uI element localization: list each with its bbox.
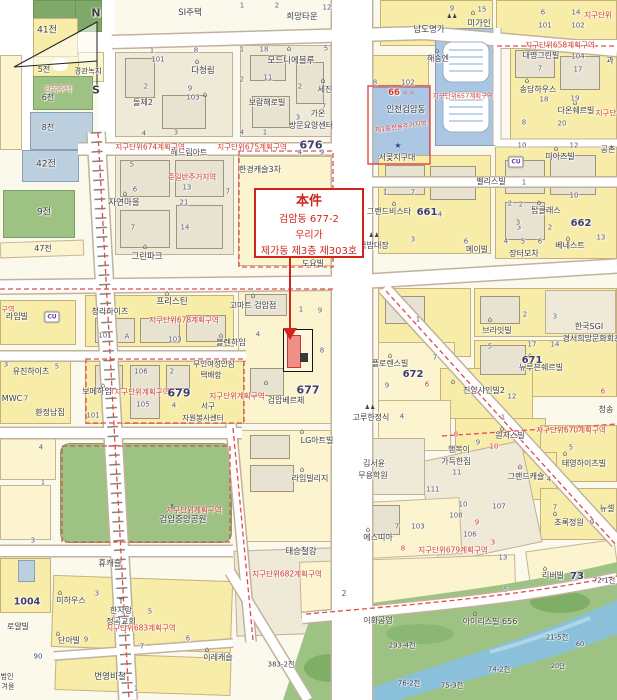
map-label: 검암베르체 — [268, 397, 305, 405]
map-label: 메이빌 — [466, 246, 488, 254]
map-label: 4 — [240, 130, 244, 137]
map-label: 9 — [385, 383, 389, 390]
map-label: 라임빌 — [6, 313, 28, 321]
map-label: 102 — [401, 80, 414, 87]
map-label: 5 — [148, 609, 152, 616]
map-label: 단아빌 — [58, 637, 80, 645]
map-label: 6 — [538, 239, 542, 246]
map-label: 101 — [151, 57, 164, 64]
map-label: 청라하이츠 — [92, 308, 129, 316]
map-label: 지구단위658계획구역 — [525, 41, 595, 49]
map-label: 9전 — [37, 209, 51, 218]
map-label: 2 — [170, 369, 174, 376]
map-label: 2 — [298, 84, 302, 91]
map-label: 9 — [188, 86, 192, 93]
map-label: 지구단위670계획구역 — [536, 426, 606, 434]
map-label: 법인 — [1, 674, 14, 681]
map-label: 1 — [41, 480, 45, 487]
map-label: 6천 — [42, 94, 54, 102]
map-label: 5 — [130, 162, 134, 169]
map-label: 6 — [133, 187, 137, 194]
map-label: 15 — [478, 7, 487, 14]
map-label: 103 — [411, 524, 424, 531]
map-label: 지구단위679계획구역 — [418, 546, 488, 554]
map-label: 4 — [400, 414, 404, 421]
map-label: 7 — [553, 505, 557, 512]
map-label: 10 — [459, 502, 468, 509]
map-label: 택배함 — [201, 371, 222, 379]
map-label: 그랜드캐슬 — [508, 473, 545, 481]
map-label: 가온 — [311, 110, 326, 118]
map-label: 지구단위678계획구역 — [149, 316, 219, 324]
map-label: 18 — [540, 97, 549, 104]
map-label: 보메하임 — [82, 388, 111, 396]
map-label: LG아트빌 — [301, 437, 334, 445]
map-label: A — [125, 334, 130, 341]
map-label: 5 — [569, 445, 573, 452]
map-label: 10 — [490, 444, 499, 451]
callout-arrow-line — [289, 256, 291, 330]
map-label: 해송엔 — [427, 55, 449, 63]
map-label: 73 — [570, 572, 584, 582]
map-label: 6 — [464, 239, 468, 246]
map-label: 293-4천 — [389, 643, 416, 650]
map-label: 한사랑 — [110, 607, 132, 615]
map-label: 3 — [174, 130, 178, 137]
map-label: 정곡교회 — [106, 618, 135, 626]
map-label: 브라잇빌 — [482, 327, 511, 335]
map-label: 8 — [522, 120, 526, 127]
callout-case-label: 本件 — [296, 190, 322, 209]
building-icon: ⌂ — [143, 244, 147, 251]
building-icon: ⌂ — [123, 191, 127, 198]
map-label: 무인여성안심 — [193, 360, 234, 368]
map-label: 뉴셀 — [600, 505, 615, 513]
map-label: 5전 — [38, 66, 50, 74]
map-label: 14 — [181, 225, 190, 232]
map-label: 태승철강 — [285, 548, 316, 557]
map-label: 90 — [34, 654, 43, 661]
map-label: 라임빌리지 — [292, 475, 329, 483]
callout-unit: 제가동 제3층 제303호 — [261, 242, 357, 257]
map-label: 662 — [571, 219, 592, 229]
map-label: 3 — [516, 220, 520, 227]
map-label: 단독주택 — [44, 85, 72, 93]
map-label: 다청림 — [191, 67, 214, 76]
map-label: 남도명가 — [413, 26, 444, 35]
map-label: 41전 — [37, 27, 57, 36]
map-label: 2 — [508, 201, 512, 208]
map-label: 21-5천 — [546, 635, 568, 642]
map-label: 리버빌 — [542, 572, 564, 580]
map-label: 8 — [373, 80, 377, 87]
map-label: 서곶지구대 — [379, 154, 416, 162]
map-label: 103 — [168, 337, 181, 344]
map-label: 3 — [31, 538, 35, 545]
map-label: 104 — [571, 54, 584, 61]
map-label: 6 — [541, 10, 545, 17]
map-label: 제1종전용주거지역 — [375, 120, 427, 134]
map-label: 72-1천 — [593, 578, 615, 585]
map-label: 2 — [275, 3, 279, 10]
map-label: 미아즈빌 — [545, 153, 574, 161]
map-label: 10 — [570, 193, 579, 200]
map-label: 6 — [601, 389, 605, 396]
map-label: 5 — [521, 239, 525, 246]
map-label: 13 — [499, 555, 508, 562]
map-label: 4 — [39, 445, 43, 452]
map-label: 6 — [425, 382, 429, 389]
building-icon: ⌂ — [488, 317, 492, 324]
map-label: 송담하우스 — [520, 86, 557, 94]
map-label: 2 — [341, 590, 346, 598]
map-label: 383-2천 — [268, 662, 295, 669]
map-label: 1 — [522, 180, 526, 187]
map-label: 12 — [323, 5, 332, 12]
map-label: 4 — [256, 332, 260, 339]
map-label: 검암중앙공원 — [160, 516, 207, 525]
map-label: 101 — [98, 333, 111, 340]
map-label: 8 — [454, 432, 458, 439]
map-label: 7 — [226, 189, 230, 196]
map-label: 고마트 검암점 — [230, 302, 277, 310]
map-label: 준일반주거지역 — [168, 173, 216, 181]
map-label: 1004 — [14, 597, 40, 607]
map-label: 12 — [508, 394, 517, 401]
map-label: 677 — [297, 385, 320, 396]
map-label: 74-2천 — [488, 667, 510, 674]
map-label: 이화공영 — [363, 617, 392, 625]
map-label: 106 — [134, 369, 147, 376]
map-label: 로얄빌 — [7, 623, 29, 631]
map-label: 3 — [95, 591, 99, 598]
map-label: 17 — [574, 67, 583, 74]
map-label: 인천검암동 — [386, 106, 425, 115]
map-label: 번영비철 — [94, 673, 125, 682]
map-label: SI주택 — [178, 9, 202, 18]
map-label: 101 — [538, 23, 551, 30]
police-badge-icon: ★ — [394, 142, 401, 150]
map-label: 9 — [590, 520, 594, 527]
map-label: 초록정원 — [554, 519, 583, 527]
map-label: 21 — [180, 200, 189, 207]
map-label: 12 — [570, 143, 579, 150]
map-label: 지구단위 — [584, 11, 612, 19]
map-label: 자연마을 — [108, 199, 139, 208]
building-icon: ⌂ — [403, 90, 407, 96]
map-label: 서구 — [201, 402, 215, 410]
map-label: 7 — [395, 524, 399, 531]
map-label: 60 — [576, 641, 584, 648]
map-label: 지구단위674계획구역 — [115, 143, 185, 151]
map-label: 가득한집 — [441, 458, 470, 466]
map-label: 에스띠아 — [363, 534, 392, 542]
map-label: 블렌하임 — [216, 339, 245, 347]
map-label: 11 — [453, 470, 462, 477]
map-label: 105 — [136, 402, 149, 409]
map-label: 한국SGI — [575, 323, 603, 331]
map-label: 107 — [492, 504, 505, 511]
map-label: 14 — [572, 10, 581, 17]
map-label: 102 — [571, 23, 584, 30]
map-label: 13 — [183, 185, 192, 192]
map-label: 679 — [168, 388, 191, 399]
map-label: 그랜드비스타 — [367, 208, 411, 216]
map-label: 672 — [403, 370, 424, 380]
building-icon: ⌂ — [251, 293, 255, 300]
map-label: 8천 — [42, 124, 54, 132]
map-label: 1 — [416, 317, 420, 324]
map-label: 청송 — [599, 406, 614, 414]
map-label: S — [92, 85, 100, 96]
map-label: 아이리스빌 656 — [463, 618, 518, 626]
map-label: 프리스틴 — [156, 298, 187, 307]
map-label: 1 — [240, 47, 244, 54]
map-label: 3 — [491, 540, 495, 547]
building-icon: ⌂ — [321, 78, 325, 85]
map-label: 3 — [411, 237, 415, 244]
map-label: 18 — [260, 47, 269, 54]
map-label: 지구단위계획구역 — [209, 392, 264, 400]
map-label: 한경캐슬3차 — [239, 166, 281, 174]
map-label: 20단 — [551, 663, 565, 670]
map-label: 1 — [150, 48, 154, 55]
map-label: 미하우스 — [56, 597, 85, 605]
map-label: 6 — [186, 636, 190, 643]
map-label: 4 — [438, 212, 442, 219]
building-icon: ⌂ — [287, 46, 291, 53]
map-label: 2 — [519, 202, 523, 209]
map-label: 베네스트 — [555, 242, 584, 250]
persons-icon: ♟♟ — [447, 14, 458, 20]
persons-icon: ♟♟ — [369, 233, 380, 239]
map-label: 지구단위계획구역 — [114, 388, 169, 396]
callout-building: 우리가 — [295, 226, 323, 241]
map-label: 장터모차 — [509, 250, 538, 258]
map-label: 10 — [518, 143, 527, 150]
map-label: 자원봉사센터 — [182, 414, 223, 422]
map-label: 7 — [411, 190, 415, 197]
map-label: 75-3천 — [441, 683, 463, 690]
map-label: 1 — [240, 3, 244, 10]
map-label: 모드니에블루 — [268, 57, 315, 66]
map-label: 9 — [475, 520, 479, 527]
map-label: 행복이 — [448, 446, 470, 454]
map-label: 2 — [523, 312, 527, 319]
building-icon: ⌂ — [264, 380, 268, 387]
callout-arrow-head — [283, 328, 297, 340]
map-label: 그린파크 — [131, 253, 162, 262]
map-label: 대명그린빌 — [523, 52, 560, 60]
map-label: 101 — [86, 413, 99, 420]
map-label: 11 — [264, 75, 273, 82]
building-icon: ⌂ — [203, 92, 207, 99]
building-icon: ⌂ — [410, 90, 414, 96]
map-label: 5 — [55, 364, 59, 371]
map-label: 1 — [263, 130, 267, 137]
map-label: 3 — [296, 115, 300, 122]
building-icon: ⌂ — [195, 59, 199, 66]
map-label: 47전 — [34, 245, 52, 253]
map-label: 벨리스빌 — [476, 178, 505, 186]
map-label: 2 — [548, 225, 552, 232]
map-label: 보람해로빌 — [249, 99, 286, 107]
building-icon — [300, 353, 308, 362]
map-label: 4 — [547, 477, 551, 484]
map-label: 탑클래스 — [531, 207, 560, 215]
map-label: 이레캐슬 — [203, 654, 232, 662]
map-canvas: NS41전5전경관녹지단독주택6천8천42전9전47전SI주택희망타운1212다… — [0, 0, 617, 700]
map-label: 9 — [476, 440, 480, 447]
map-label: 1 — [383, 190, 387, 197]
map-label: 108 — [449, 513, 462, 520]
map-label: 유진하이츠 — [13, 368, 50, 376]
map-label: 8 — [401, 546, 405, 553]
map-label: 9 — [450, 6, 454, 13]
map-label: N — [91, 8, 100, 19]
map-label: 2 — [144, 84, 148, 91]
map-label: 1 — [299, 307, 303, 314]
map-label: 76-2천 — [398, 681, 420, 688]
cu-store-badge: CU — [44, 312, 59, 323]
map-label: 돌체2 — [133, 99, 153, 107]
map-label: 경관녹지 — [74, 67, 102, 75]
map-label: 지구단 — [596, 109, 617, 117]
map-label: 111 — [426, 487, 439, 494]
map-label: 9 — [320, 150, 324, 157]
map-label: 휴캐슬 — [98, 560, 121, 569]
map-label: 7 — [140, 644, 144, 651]
map-label: 경서희망문화회관 — [563, 335, 617, 343]
map-label: 13 — [597, 235, 606, 242]
map-label: 환정남집 — [35, 409, 64, 417]
map-label: 19 — [571, 96, 580, 103]
map-label: 과 — [606, 57, 613, 65]
map-label: 4 — [142, 131, 146, 138]
map-label: 66 — [388, 89, 400, 98]
map-label: 14 — [551, 342, 560, 349]
map-label: 무용학원 — [358, 472, 387, 480]
map-label: 4 — [172, 403, 176, 410]
map-label: 고루한정식 — [353, 414, 390, 422]
map-label: 5 — [504, 587, 508, 594]
map-label: 661 — [417, 208, 438, 218]
map-label: 겨울 — [2, 684, 15, 691]
map-label: 지구단위675계획구역 — [217, 143, 287, 151]
map-label: 4 — [298, 150, 302, 157]
map-label: MWC — [2, 395, 22, 403]
map-label: 도요빌 — [302, 260, 324, 268]
map-label: 9 — [318, 308, 322, 315]
map-label: 4 — [504, 239, 508, 246]
map-label: 2 — [240, 77, 244, 84]
map-label: 7 — [433, 355, 437, 362]
callout-address: 검암동 677-2 — [279, 210, 339, 225]
map-label: 김서윤 — [363, 460, 385, 468]
map-label: 지구단위682계획구역 — [252, 570, 322, 578]
map-label: 20 — [558, 121, 567, 128]
map-label: 103 — [186, 95, 199, 102]
map-label: 방문요양센터 — [289, 122, 333, 130]
map-label: 106 — [463, 532, 476, 539]
building-icon: ⌂ — [518, 464, 522, 471]
building-icon: ⌂ — [300, 429, 304, 436]
map-label: 17 — [528, 342, 537, 349]
map-label: 지구단위657계획구역 — [433, 93, 493, 100]
building-icon: ⌂ — [300, 467, 304, 474]
map-label: 5 — [488, 344, 492, 351]
subject-callout[interactable]: 本件 검암동 677-2 우리가 제가동 제3층 제303호 — [254, 188, 364, 258]
map-label: 원저스빌 — [495, 432, 524, 440]
cu-store-badge: CU — [508, 157, 523, 168]
map-label: 7 — [322, 104, 326, 111]
map-label: 9 — [84, 637, 88, 644]
building-icon: ⌂ — [525, 78, 529, 85]
map-label: 8 — [320, 348, 324, 355]
map-label: 42전 — [36, 161, 56, 170]
building-icon: ⌂ — [471, 10, 475, 17]
map-label: 세진 — [318, 86, 333, 94]
building-icon: ⌂ — [563, 451, 567, 458]
building-icon: ⌂ — [553, 511, 557, 518]
map-label: 미가인 — [467, 20, 490, 29]
map-label: 5 — [324, 46, 328, 53]
map-label: 7 — [24, 396, 28, 403]
map-label: 1 — [134, 686, 138, 693]
map-label: 희망타운 — [286, 13, 317, 22]
map-label: 3 — [553, 314, 557, 321]
persons-icon: ♟♟ — [365, 405, 376, 411]
map-label: 태영하이츠빌 — [562, 460, 606, 468]
map-label: 7 — [131, 225, 135, 232]
map-label: 진양샤인빌2 — [463, 387, 505, 395]
map-label: 뉴루븐쉐르빌 — [519, 364, 563, 372]
map-label: 플로렌스빌 — [372, 360, 409, 368]
map-label: 다온쉐르빌 — [558, 107, 595, 115]
map-label: 1 — [501, 415, 505, 422]
map-label: 7 — [538, 66, 542, 73]
map-label: 8 — [194, 48, 198, 55]
map-label: 3 — [4, 362, 8, 369]
building-icon: ⌂ — [451, 379, 455, 386]
map-label: 공촌 — [601, 146, 616, 154]
map-label: 지구단위계획구역 — [166, 506, 221, 514]
